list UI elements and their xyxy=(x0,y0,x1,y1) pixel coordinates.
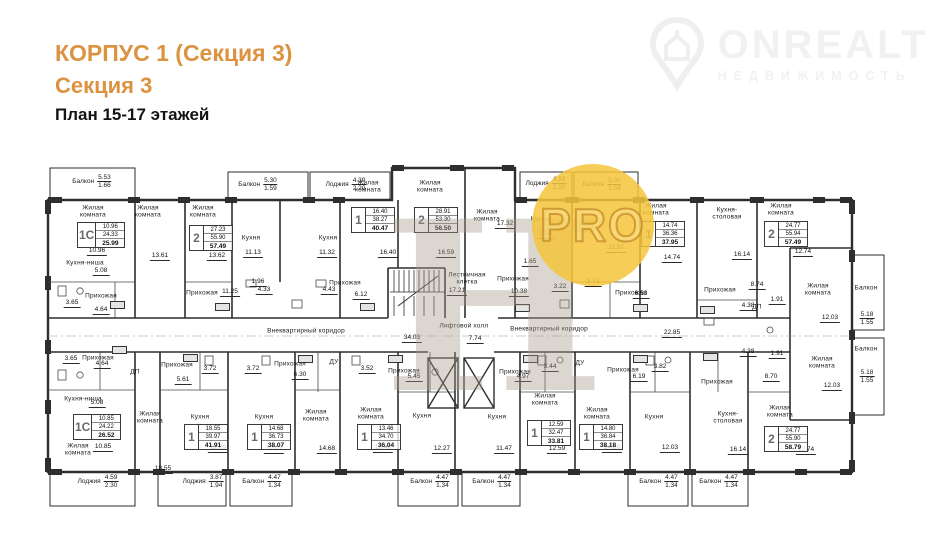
apt-number-tag xyxy=(388,355,403,363)
dimension-label: 3.52 xyxy=(359,365,376,374)
dimension-label: 4.97 xyxy=(515,373,532,382)
room-label: Жилая комната xyxy=(768,203,794,218)
balcony-area-label: Балкон4.471.34 xyxy=(242,474,281,490)
room-label: Жилая комната xyxy=(303,409,329,424)
apartment-spec: 224.7755.9457.49 xyxy=(764,221,808,247)
dimension-label: 17.21 xyxy=(447,287,467,296)
room-label: Прихожая xyxy=(704,286,736,293)
room-label: Жилая комната xyxy=(190,205,216,220)
room-label: Кухня- столовая xyxy=(712,207,741,222)
apt-number-tag xyxy=(700,306,715,314)
room-label: Лифтовой холл xyxy=(440,322,489,329)
room-label: Прихожая xyxy=(186,289,218,296)
apartment-spec: 224.7755.9058.79 xyxy=(764,426,808,452)
dimension-label: 16.40 xyxy=(378,249,398,258)
room-label: Жилая комната xyxy=(65,443,91,458)
apartment-spec: 1С10.8524.2226.52 xyxy=(73,414,121,440)
dimension-label: 3.65 xyxy=(63,355,80,364)
room-label: Кухня xyxy=(413,412,431,419)
dimension-label: 6.53 xyxy=(633,290,650,299)
room-label: Кухня xyxy=(645,413,663,420)
apartment-spec: 118.5539.9741.91 xyxy=(184,424,228,450)
room-label: Прихожая xyxy=(85,292,117,299)
apartment-spec: 114.8036.8438.18 xyxy=(579,424,623,450)
dimension-label: 14.68 xyxy=(317,445,337,454)
dimension-label: 13.62 xyxy=(207,252,227,261)
apartment-spec: 112.5932.4733.81 xyxy=(527,420,571,446)
apt-number-tag xyxy=(215,303,230,311)
room-label: Жилая комната xyxy=(358,407,384,422)
dimension-label: 6.30 xyxy=(292,371,309,380)
dimension-label: 5.08 xyxy=(89,399,106,408)
room-label: Внеквартирный коридор xyxy=(267,327,345,334)
balcony-area-label: Балкон4.471.34 xyxy=(699,474,738,490)
dimension-label: 4.43 xyxy=(321,286,338,295)
apt-number-tag xyxy=(633,304,648,312)
dimension-label: 10.96 xyxy=(87,247,107,256)
room-label: Кухня xyxy=(319,234,337,241)
dimension-label: 18.55 xyxy=(153,465,173,474)
balcony-area-label: Балкон4.471.34 xyxy=(639,474,678,490)
page: ONREALT НЕДВИЖИМОСТЬ КОРПУС 1 (Секция 3)… xyxy=(0,0,941,550)
room-label: Прихожая xyxy=(161,361,193,368)
dimension-label: 6.19 xyxy=(631,373,648,382)
apartment-spec: 116.4038.2740.47 xyxy=(351,207,395,233)
dimension-label: 5.61 xyxy=(175,376,192,385)
dimension-label: 12.59 xyxy=(547,445,567,454)
balcony-area-label: Лоджия4.592.30 xyxy=(78,474,119,490)
dimension-label: 1.65 xyxy=(522,258,539,267)
apartment-spec: 114.6836.7338.07 xyxy=(247,424,291,450)
room-label: Жилая комната xyxy=(584,407,610,422)
title-block: КОРПУС 1 (Секция 3) Секция 3 План 15-17 … xyxy=(55,42,292,123)
dimension-label: 11.25 xyxy=(220,288,240,297)
dimension-label: 4.64 xyxy=(94,360,111,369)
dimension-label: 11.13 xyxy=(243,249,263,258)
apartment-spec: 227.2355.9057.49 xyxy=(189,225,233,251)
apt-number-tag xyxy=(523,355,538,363)
apartment-spec: 113.4634.7036.04 xyxy=(357,424,401,450)
apt-number-tag xyxy=(633,355,648,363)
dimension-label: 4.33 xyxy=(256,286,273,295)
room-label: Кухня xyxy=(488,413,506,420)
pro-badge-watermark: PRO xyxy=(532,164,654,286)
room-label: Кухня xyxy=(191,413,209,420)
dimension-label: 8.74 xyxy=(749,281,766,290)
dimension-label: 3.44 xyxy=(542,363,559,372)
room-label: ДУ xyxy=(575,359,584,366)
dimension-label: 4.64 xyxy=(93,306,110,315)
dimension-label: 1.91 xyxy=(769,296,786,305)
dimension-label: 16.14 xyxy=(728,446,748,455)
balcony-area-label: Балкон4.471.34 xyxy=(472,474,511,490)
dimension-label: 10.85 xyxy=(93,443,113,452)
room-label: Жилая комната xyxy=(80,205,106,220)
apt-number-tag xyxy=(515,304,530,312)
dimension-label: 16.14 xyxy=(732,251,752,260)
apt-number-tag xyxy=(110,301,125,309)
room-label: Балкон xyxy=(855,345,878,352)
dimension-label: 3.72 xyxy=(202,365,219,374)
dimension-label: 1.91 xyxy=(769,350,786,359)
dimension-label: 12.74 xyxy=(793,248,813,257)
dimension-label: 5.08 xyxy=(93,267,110,276)
apartment-spec: 1С10.9624.3325.99 xyxy=(77,222,125,248)
apt-number-tag xyxy=(183,354,198,362)
dimension-label: 12.03 xyxy=(822,382,842,391)
room-label: Жилая комната xyxy=(809,356,835,371)
room-label: Жилая комната xyxy=(137,411,163,426)
room-label: Лестничная клетка xyxy=(448,272,485,287)
room-label: Кухня xyxy=(255,413,273,420)
balcony-area-label: 5.181.55 xyxy=(860,369,875,385)
room-label: Жилая комната xyxy=(805,283,831,298)
dimension-label: 10.38 xyxy=(509,288,529,297)
dimension-label: 8.70 xyxy=(763,373,780,382)
apt-number-tag xyxy=(360,303,375,311)
dimension-label: 17.32 xyxy=(495,220,515,229)
room-label: Балкон xyxy=(855,284,878,291)
room-label: Прихожая xyxy=(701,378,733,385)
room-label: Кухня-ниша xyxy=(66,259,104,266)
section-title: Секция 3 xyxy=(55,75,292,97)
dimension-label: 3.72 xyxy=(245,365,262,374)
room-label: ДП xyxy=(130,368,139,375)
dimension-label: 11.47 xyxy=(494,445,514,454)
dimension-label: 12.03 xyxy=(660,444,680,453)
dimension-label: 14.74 xyxy=(662,254,682,263)
dimension-label: 5.45 xyxy=(406,373,423,382)
dimension-label: 22.85 xyxy=(662,329,682,338)
dimension-label: 3.82 xyxy=(652,363,669,372)
building-title: КОРПУС 1 (Секция 3) xyxy=(55,42,292,65)
apartment-spec: 228.9153.3056.50 xyxy=(414,207,458,233)
room-label: Жилая комната xyxy=(767,405,793,420)
dimension-label: 12.27 xyxy=(432,445,452,454)
balcony-area-label: Лоджия3.871.94 xyxy=(183,474,224,490)
room-label: Кухня xyxy=(242,234,260,241)
dimension-label: 4.38 xyxy=(740,348,757,357)
dimension-label: 34.03 xyxy=(402,334,422,343)
room-label: Внеквартирный коридор xyxy=(510,325,588,332)
apt-number-tag xyxy=(298,355,313,363)
dimension-label: 4.38 xyxy=(740,302,757,311)
balcony-area-label: Балкон5.301.59 xyxy=(238,177,277,193)
dimension-label: 3.65 xyxy=(64,299,81,308)
room-label: ДУ xyxy=(329,358,338,365)
balcony-area-label: Лоджия4.392.20 xyxy=(326,177,367,193)
dimension-label: 12.03 xyxy=(820,314,840,323)
balcony-area-label: Балкон4.471.34 xyxy=(410,474,449,490)
dimension-label: 6.12 xyxy=(353,291,370,300)
plan-subtitle: План 15-17 этажей xyxy=(55,106,292,123)
dimension-label: 11.32 xyxy=(317,249,337,258)
apt-number-tag xyxy=(703,353,718,361)
pro-badge-text: PRO xyxy=(540,198,646,252)
dimension-label: 16.59 xyxy=(436,249,456,258)
apt-number-tag xyxy=(112,346,127,354)
room-label: Прихожая xyxy=(497,275,529,282)
dimension-label: 3.22 xyxy=(552,283,569,292)
room-label: Жилая комната xyxy=(532,393,558,408)
dimension-label: 13.61 xyxy=(150,252,170,261)
dimension-label: 7.74 xyxy=(467,335,484,344)
room-label: Жилая комната xyxy=(417,180,443,195)
balcony-area-label: 5.181.55 xyxy=(860,311,875,327)
balcony-area-label: Балкон5.531.66 xyxy=(72,174,111,190)
room-label: Кухня- столовая xyxy=(713,411,742,426)
room-label: Жилая комната xyxy=(135,205,161,220)
